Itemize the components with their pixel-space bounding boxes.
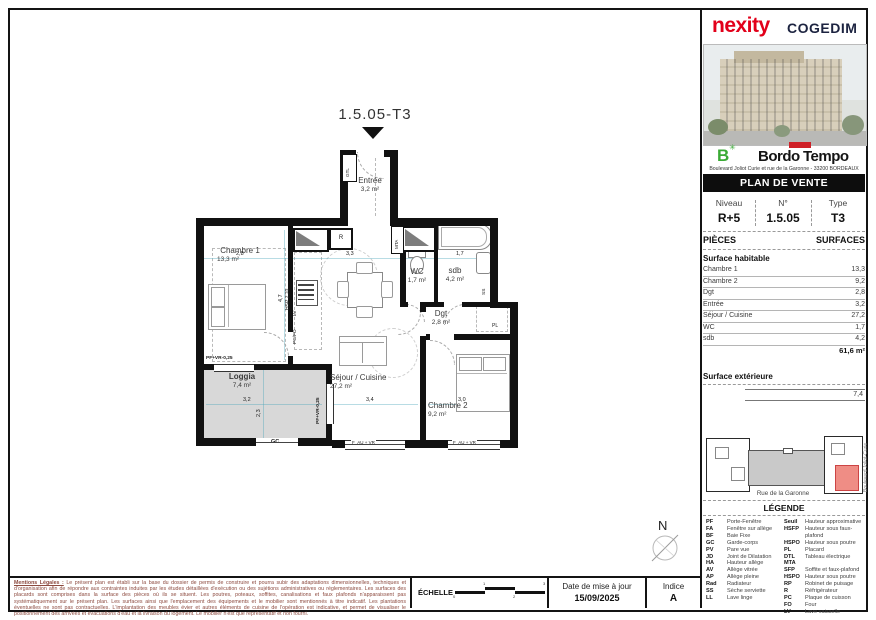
mentions-legales: Mentions Légales : Le présent plan est é…	[14, 580, 406, 617]
site-block-center	[748, 450, 826, 486]
sidebar-divider	[700, 10, 702, 608]
surface-row-value: 1,7	[855, 323, 865, 334]
sofa-cushion-line	[362, 343, 363, 363]
chair-symbol	[356, 262, 373, 274]
legend-label: Placard	[805, 547, 824, 554]
plan-title: 1.5.05-T3	[320, 106, 430, 123]
dining-table-symbol	[347, 272, 383, 308]
chair-symbol	[337, 281, 349, 298]
wall-segment	[424, 302, 444, 307]
wall-segment	[434, 226, 438, 302]
surface-row-value: 13,3	[851, 265, 865, 276]
legend-label: Porte-Fenêtre	[727, 519, 762, 526]
exterieure-title: Surface extérieure	[703, 372, 865, 381]
mentions-title: Mentions Légales :	[14, 580, 64, 586]
habitable-title: Surface habitable	[703, 254, 865, 263]
pillow-symbol	[483, 357, 506, 371]
wall-segment	[405, 440, 448, 448]
wall-segment	[196, 364, 214, 370]
pillow-symbol	[459, 357, 482, 371]
project-address: Boulevard Joliot Curie et rue de la Garo…	[703, 166, 865, 172]
surface-row-label: Chambre 1	[703, 265, 738, 276]
wall-segment	[510, 302, 518, 448]
chair-symbol	[381, 281, 393, 298]
surface-row: Chambre 113,3	[703, 265, 865, 277]
surface-row-label: Chambre 2	[703, 277, 738, 288]
pf-vr-label-2: PF+VR-0,25	[316, 397, 321, 424]
chair-symbol	[356, 306, 373, 318]
counter-triangle	[296, 231, 320, 246]
legend-label: Plaque de cuisson	[805, 595, 851, 602]
b-logo-star-icon: ✳	[729, 143, 736, 152]
legend-abbr: HSFP	[784, 526, 805, 540]
divider	[703, 515, 865, 516]
legend-label: Allège vitrée	[727, 567, 758, 574]
legend-abbr: LL	[706, 595, 727, 602]
room-label-wc: WC 1,7 m²	[400, 267, 434, 285]
surface-row: Séjour / Cuisine27,2	[703, 311, 865, 323]
project-name-1: Bordo	[758, 148, 800, 165]
legend-row: FOFour	[784, 602, 866, 609]
dim-4-7: 4,7	[278, 294, 284, 302]
legend-abbr: RP	[784, 581, 805, 588]
wall-segment	[254, 364, 332, 370]
dim-3-3: 3,3	[346, 251, 354, 257]
surface-row: Entrée3,2	[703, 300, 865, 312]
echelle-label: ÉCHELLE	[418, 588, 453, 597]
legend-label: Hauteur approximative	[805, 519, 861, 526]
pillow-symbol	[211, 307, 225, 327]
legend-label: Baie Fixe	[727, 533, 750, 540]
site-highlighted-unit	[835, 465, 859, 491]
mentions-text: Le présent plan est établi sur la base d…	[14, 580, 406, 617]
legend-row: SSSèche serviette	[706, 588, 782, 595]
pieces-header: PIÈCES	[703, 235, 736, 245]
legend-row: RRéfrigérateur	[784, 588, 866, 595]
scale-tick: 0	[453, 594, 455, 599]
site-block-left	[706, 438, 750, 492]
unit-info-table: Niveau N° Type R+5 1.5.05 T3	[703, 198, 865, 230]
legend-abbr: MTA	[784, 560, 805, 567]
pillow-symbol	[211, 287, 225, 307]
legend-row: HAHauteur allège	[706, 560, 782, 567]
legend-abbr: FO	[784, 602, 805, 609]
room-label-sejour: Séjour / Cuisine 27,2 m²	[330, 373, 406, 391]
sofa-symbol	[339, 336, 387, 366]
legend-abbr: PF	[706, 519, 727, 526]
loggia-door-top	[214, 364, 254, 372]
legend-label: Tableau électrique	[805, 554, 850, 561]
mta-label: MTA	[394, 240, 399, 249]
legend-abbr: PV	[706, 547, 727, 554]
legend-row: RadRadiateur	[706, 581, 782, 588]
footer-cell-divider	[410, 578, 412, 608]
legend-abbr: GC	[706, 540, 727, 547]
legend-row: HSPOHauteur sous poutre	[784, 540, 866, 547]
legend-abbr: SS	[706, 588, 727, 595]
wall-segment	[196, 218, 348, 226]
lv-label: LV	[293, 310, 298, 316]
surface-row-value: 9,2	[855, 277, 865, 288]
room-label-chambre2: Chambre 2 9,2 m²	[428, 401, 490, 419]
legend-row: PCPlaque de cuisson	[784, 595, 866, 602]
legend-abbr: AV	[706, 567, 727, 574]
floor-plan: 1.5.05-T3 Entrée 3,2 m² Chambre 1 13,3 m…	[0, 0, 700, 576]
hsp-label: HSP 2,70	[285, 289, 291, 310]
legend-row: LVLave vaisselle	[784, 609, 866, 616]
site-map: Rue de la Garonne Boulevard Joliot-Curie	[703, 430, 865, 496]
building-photo	[703, 44, 867, 146]
type-label: Type	[811, 198, 865, 208]
surface-row: Dgt2,8	[703, 288, 865, 300]
tree	[774, 125, 790, 137]
legend-label: Garde-corps	[727, 540, 758, 547]
legend-row: LLLave linge	[706, 595, 782, 602]
washbasin-triangle	[405, 229, 429, 246]
wall-segment	[196, 364, 204, 446]
legend-abbr: HSPO	[784, 574, 805, 581]
divider	[703, 384, 865, 385]
legend-row: JDJoint de Dilatation	[706, 554, 782, 561]
room-label-loggia: Loggia 7,4 m²	[210, 372, 274, 390]
surface-row-value: 4,2	[855, 334, 865, 345]
indice-value: A	[647, 593, 700, 604]
window-f-au-2: F_AU + VR	[448, 440, 500, 450]
legend-label: Lave linge	[727, 595, 753, 602]
site-block-right	[824, 436, 863, 494]
legend-label: Four	[805, 602, 817, 609]
niveau-value: R+5	[703, 211, 755, 225]
surface-row-label: Dgt	[703, 288, 714, 299]
legend-right-column: SeuilHauteur approximativeHSFPHauteur so…	[784, 519, 866, 616]
pl-label: PL	[492, 323, 498, 329]
window-f-au-1: F_AU + VR	[345, 440, 405, 450]
legend-row: HSPOHauteur sous poutre	[784, 574, 866, 581]
legend-row: MTA	[784, 560, 866, 567]
north-label: N	[658, 518, 667, 533]
street-side-label: Boulevard Joliot-Curie	[863, 443, 869, 492]
room-label-entree: Entrée 3,2 m²	[344, 176, 396, 194]
legend-row: GCGarde-corps	[706, 540, 782, 547]
surface-row: WC1,7	[703, 323, 865, 335]
legend-row: PVPare vue	[706, 547, 782, 554]
exterieure-value: 7,4	[853, 391, 863, 398]
scale-bar: 0 1 2 3	[455, 586, 545, 598]
fridge-symbol: R	[329, 228, 353, 250]
bed-fold-line	[228, 285, 229, 327]
tree	[708, 119, 728, 135]
dim-3-0: 3,0	[458, 397, 466, 403]
wall-segment	[420, 336, 426, 440]
building-windows	[720, 59, 842, 131]
banner-plan-de-vente: PLAN DE VENTE COMMERCIAL	[703, 174, 865, 192]
legend-abbr: PL	[784, 547, 805, 554]
legend-row: HSFPHauteur sous faux-plafond	[784, 526, 866, 540]
legend-row: PFPorte-Fenêtre	[706, 519, 782, 526]
wall-segment	[462, 302, 490, 307]
surface-row-label: Entrée	[703, 300, 724, 311]
legend-row: AVAllège vitrée	[706, 567, 782, 574]
tree	[842, 115, 864, 135]
wall-segment	[390, 218, 498, 226]
wall-segment	[196, 438, 256, 446]
sink-symbol	[476, 252, 491, 274]
num-value: 1.5.05	[755, 211, 811, 225]
legend-label: Pare vue	[727, 547, 749, 554]
legend-abbr: LV	[784, 609, 805, 616]
legende-title: LÉGENDE	[703, 503, 865, 513]
pcfo-label: PC/FO	[293, 329, 298, 344]
wall-segment	[426, 334, 430, 340]
plan-de-vente-sheet: 1.5.05-T3 Entrée 3,2 m² Chambre 1 13,3 m…	[0, 0, 876, 620]
legend-label: Hauteur sous faux-plafond	[805, 526, 866, 540]
legend-label: Soffite et faux-plafond	[805, 567, 859, 574]
dim-2-8: 2,8	[236, 251, 244, 257]
dim-1-7: 1,7	[456, 251, 464, 257]
legend-row: FAFenêtre sur allège	[706, 526, 782, 533]
pf-vr-label: PF+VR-0,25	[206, 356, 233, 361]
surfaces-header-label: SURFACES	[816, 235, 865, 245]
surface-row-value: 3,2	[855, 300, 865, 311]
legend-row: DTLTableau électrique	[784, 554, 866, 561]
legend-label: Réfrigérateur	[805, 588, 838, 595]
indice-label: Indice	[647, 582, 700, 591]
scale-tick: 3	[543, 581, 545, 586]
fridge-label: R	[339, 235, 343, 241]
num-label: N°	[755, 198, 811, 208]
niveau-label: Niveau	[703, 198, 755, 208]
ss-label: SS	[482, 289, 487, 295]
legend-label: Hauteur sous poutre	[805, 540, 856, 547]
legend-abbr: BF	[706, 533, 727, 540]
hob-burners	[298, 284, 314, 300]
wall-segment	[288, 226, 293, 332]
legend-row: BFBaie Fixe	[706, 533, 782, 540]
surface-row-label: WC	[703, 323, 715, 334]
legend-label: Allège pleine	[727, 574, 759, 581]
bathtub-inner	[441, 227, 487, 247]
surface-row: Chambre 29,2	[703, 277, 865, 289]
gtl-label: GTL	[345, 168, 350, 177]
date-value: 15/09/2025	[549, 593, 645, 603]
legend-abbr: HA	[706, 560, 727, 567]
legend-abbr: SFP	[784, 567, 805, 574]
legend-abbr: DTL	[784, 554, 805, 561]
legend-label: Hauteur sous poutre	[805, 574, 856, 581]
legend-abbr: AP	[706, 574, 727, 581]
scale-tick: 1	[483, 581, 485, 586]
compass-icon	[648, 532, 682, 566]
nexity-logo: nexity	[712, 14, 770, 38]
legend-abbr: FA	[706, 526, 727, 533]
wall-segment	[326, 424, 332, 440]
b-logo: B	[717, 146, 729, 166]
legend-abbr: HSPO	[784, 540, 805, 547]
legend-label: Sèche serviette	[727, 588, 766, 595]
divider	[703, 249, 865, 250]
surface-row-value: 2,8	[855, 288, 865, 299]
legend-abbr: Seuil	[784, 519, 805, 526]
surfaces-header: PIÈCES SURFACES	[703, 235, 865, 247]
guardrail-gap: GC	[256, 438, 298, 446]
entrance-marker-icon	[362, 127, 384, 139]
legend-label: Joint de Dilatation	[727, 554, 771, 561]
surface-row-label: sdb	[703, 334, 714, 345]
date-label: Date de mise à jour	[549, 582, 645, 591]
scale-tick: 2	[513, 594, 515, 599]
footer-divider	[10, 576, 700, 578]
legend-row: RPRobinet de puisage	[784, 581, 866, 588]
room-label-dgt: Dgt 2,8 m²	[420, 309, 462, 327]
dim-3-4: 3,4	[366, 397, 374, 403]
door-swing-arc	[430, 340, 455, 365]
wall-segment	[288, 356, 293, 364]
legend-left-column: PFPorte-FenêtreFAFenêtre sur allègeBFBai…	[706, 519, 782, 602]
wall-segment	[400, 302, 408, 307]
legend-abbr: R	[784, 588, 805, 595]
legend-row: SFPSoffite et faux-plafond	[784, 567, 866, 574]
room-label-sdb: sdb 4,2 m²	[437, 266, 473, 284]
legend-abbr: Rad	[706, 581, 727, 588]
surface-row-value: 27,2	[851, 311, 865, 322]
legend-row: PLPlacard	[784, 547, 866, 554]
door-swing-arc	[357, 152, 384, 179]
legend-row: SeuilHauteur approximative	[784, 519, 866, 526]
wall-segment	[454, 334, 518, 340]
exterieure-row: 7,4	[745, 389, 865, 401]
legend-row: APAllège pleine	[706, 574, 782, 581]
legend-label: Lave vaisselle	[805, 609, 840, 616]
legend-abbr: PC	[784, 595, 805, 602]
type-value: T3	[811, 211, 865, 225]
habitable-rows: Chambre 113,3Chambre 29,2Dgt2,8Entrée3,2…	[703, 265, 865, 346]
bed2-fold-line	[457, 373, 507, 374]
wall-segment	[196, 218, 204, 370]
legend-label: Hauteur allège	[727, 560, 763, 567]
legend-label: Radiateur	[727, 581, 751, 588]
divider	[703, 500, 865, 501]
legend-abbr: JD	[706, 554, 727, 561]
surface-row: sdb4,2	[703, 334, 865, 346]
door-swing-arc	[398, 312, 421, 335]
dim-2-3: 2,3	[256, 409, 262, 417]
legend-label: Robinet de puisage	[805, 581, 853, 588]
surface-row-label: Séjour / Cuisine	[703, 311, 752, 322]
divider	[703, 231, 865, 232]
cogedim-logo: COGEDIM	[787, 20, 857, 36]
habitable-total: 61,6 m²	[703, 346, 865, 355]
wall-segment	[490, 218, 498, 308]
dim-3-2: 3,2	[243, 397, 251, 403]
project-name-2: Tempo	[803, 148, 849, 165]
street-label: Rue de la Garonne	[723, 490, 843, 497]
legend-label: Fenêtre sur allège	[727, 526, 772, 533]
